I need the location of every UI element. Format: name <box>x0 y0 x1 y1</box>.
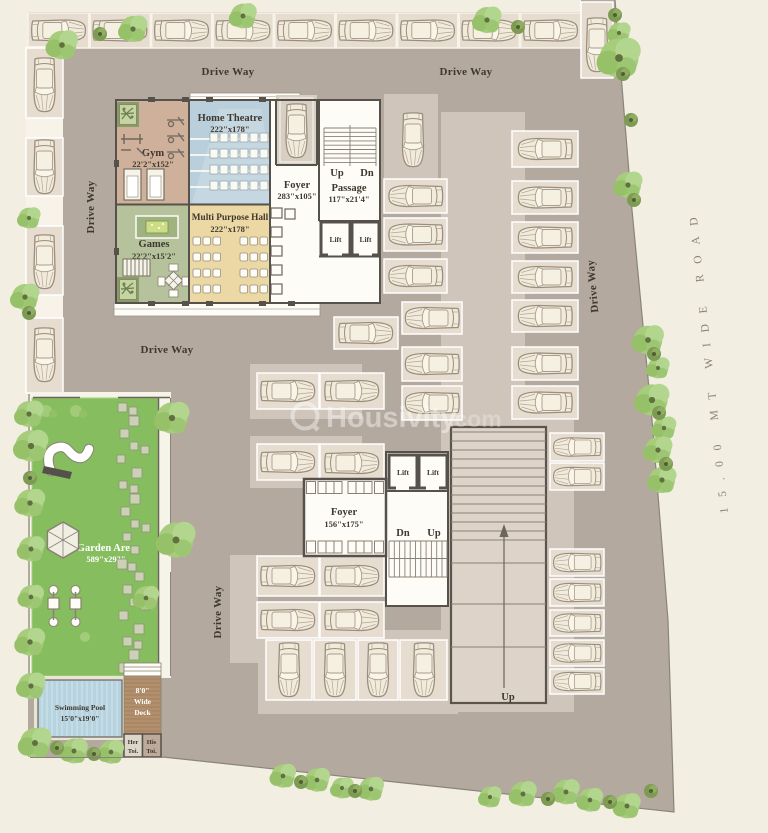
svg-text:Lift: Lift <box>397 468 410 477</box>
svg-text:.com: .com <box>448 406 502 432</box>
svg-text:Lift: Lift <box>329 235 342 244</box>
svg-text:Swimming Pool: Swimming Pool <box>55 703 105 712</box>
svg-text:Home Theatre: Home Theatre <box>198 113 263 124</box>
svg-text:283"x105": 283"x105" <box>277 191 316 201</box>
svg-text:Toi.: Toi. <box>146 748 157 755</box>
svg-text:Lift: Lift <box>359 235 372 244</box>
svg-text:Toi.: Toi. <box>128 748 139 755</box>
svg-text:15.00 MT WIDE ROAD: 15.00 MT WIDE ROAD <box>687 206 731 514</box>
svg-text:Drive Way: Drive Way <box>202 66 255 78</box>
svg-text:15'0"x19'0": 15'0"x19'0" <box>61 714 100 723</box>
svg-text:Foyer: Foyer <box>284 180 311 191</box>
svg-text:Her: Her <box>128 739 139 746</box>
svg-text:222"x178": 222"x178" <box>210 224 249 234</box>
svg-text:Dn: Dn <box>360 168 374 179</box>
svg-text:117"x21'4": 117"x21'4" <box>328 194 369 204</box>
svg-text:Foyer: Foyer <box>331 507 358 518</box>
svg-text:22'2"x152": 22'2"x152" <box>132 159 174 169</box>
svg-text:222"x178": 222"x178" <box>210 124 249 134</box>
svg-text:8'0": 8'0" <box>136 686 150 695</box>
svg-text:Deck: Deck <box>134 708 151 717</box>
svg-text:156"x175": 156"x175" <box>324 519 363 529</box>
svg-text:Lift: Lift <box>427 468 440 477</box>
svg-text:Passage: Passage <box>332 183 367 194</box>
svg-text:Drive Way: Drive Way <box>141 344 194 356</box>
svg-text:Drive Way: Drive Way <box>212 585 224 638</box>
svg-text:Wide: Wide <box>134 697 152 706</box>
svg-text:Garden Area: Garden Area <box>77 543 136 554</box>
svg-text:Housivity: Housivity <box>326 402 457 434</box>
svg-text:Drive Way: Drive Way <box>85 180 97 233</box>
svg-text:Dn: Dn <box>396 528 410 539</box>
svg-text:Up: Up <box>427 528 441 539</box>
svg-text:His: His <box>147 739 157 746</box>
svg-text:Drive Way: Drive Way <box>440 66 493 78</box>
svg-text:Gym: Gym <box>142 148 164 159</box>
svg-text:Multi Purpose Hall: Multi Purpose Hall <box>192 213 269 223</box>
svg-text:Games: Games <box>139 239 170 250</box>
svg-text:Up: Up <box>330 168 344 179</box>
svg-text:Up: Up <box>501 692 515 703</box>
